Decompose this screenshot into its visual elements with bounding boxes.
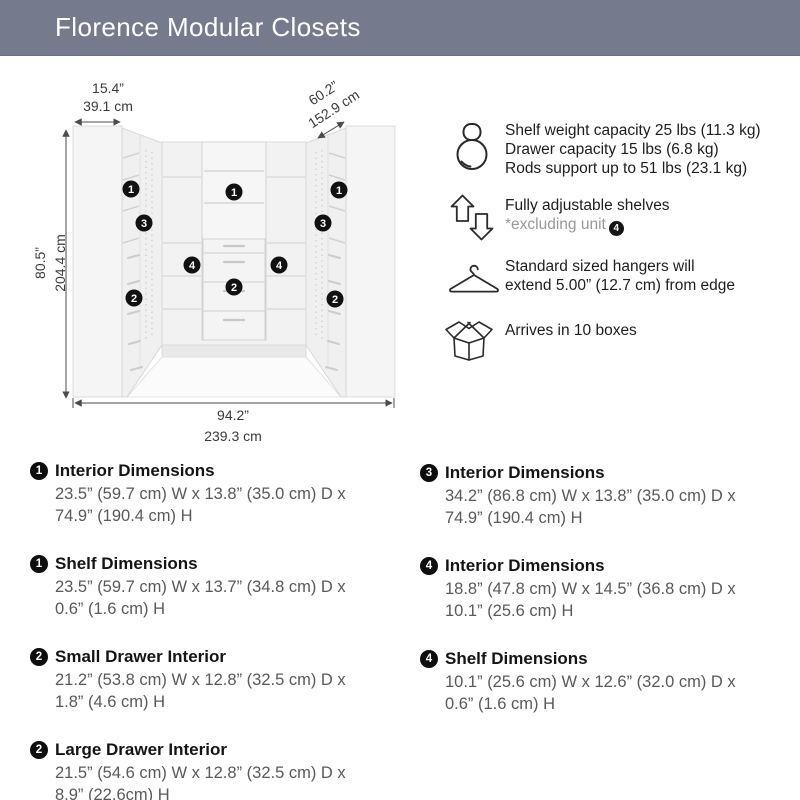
diagram-marker-2: 2 <box>327 291 344 308</box>
spec-badge: 1 <box>30 462 48 480</box>
dim-side-cm: 39.1 cm <box>83 98 133 114</box>
feature-adjustable-shelves: Fully adjustable shelves *excluding unit… <box>505 196 800 236</box>
adjustable-shelves-icon <box>450 193 494 243</box>
spec-item: 2Large Drawer Interior 21.5” (54.6 cm) W… <box>30 740 408 800</box>
dim-total-cm: 239.3 cm <box>204 428 262 444</box>
dim-total-inches: 94.2” <box>217 407 249 423</box>
spec-badge: 2 <box>30 741 48 759</box>
specs-left-column: 1Interior Dimensions 23.5” (59.7 cm) W x… <box>30 461 408 800</box>
diagram-marker-3: 3 <box>136 215 153 232</box>
spec-badge: 1 <box>30 555 48 573</box>
feature-hangers: Standard sized hangers will extend 5.00”… <box>505 257 800 295</box>
svg-text:3: 3 <box>320 218 326 230</box>
svg-text:2: 2 <box>131 293 137 305</box>
diagram-marker-4: 4 <box>184 257 201 274</box>
spec-badge: 4 <box>420 650 438 668</box>
closet-diagram: 15.4” 39.1 cm 60.2” 152.9 cm 80.5” 204.4… <box>0 0 450 460</box>
closet-illustration <box>73 126 395 397</box>
feature-boxes: Arrives in 10 boxes <box>505 321 800 340</box>
svg-text:1: 1 <box>231 187 237 199</box>
diagram-marker-2: 2 <box>226 279 243 296</box>
unit-4-badge: 4 <box>609 221 624 236</box>
spec-item: 2Small Drawer Interior 21.2” (53.8 cm) W… <box>30 647 408 713</box>
diagram-marker-2: 2 <box>126 290 143 307</box>
dim-height-inches: 80.5” <box>32 247 48 279</box>
hanger-icon <box>447 261 501 294</box>
svg-text:1: 1 <box>336 185 342 197</box>
svg-text:4: 4 <box>189 260 196 272</box>
svg-text:2: 2 <box>231 282 237 294</box>
feature-weight-capacity: Shelf weight capacity 25 lbs (11.3 kg) D… <box>505 121 800 178</box>
spec-item: 1Interior Dimensions 23.5” (59.7 cm) W x… <box>30 461 408 527</box>
spec-badge: 3 <box>420 464 438 482</box>
specs-right-column: 3Interior Dimensions 34.2” (86.8 cm) W x… <box>420 463 792 742</box>
diagram-marker-1: 1 <box>226 184 243 201</box>
diagram-marker-4: 4 <box>271 257 288 274</box>
kettlebell-icon <box>452 121 492 175</box>
diagram-marker-1: 1 <box>123 181 140 198</box>
spec-badge: 2 <box>30 648 48 666</box>
spec-badge: 4 <box>420 557 438 575</box>
dim-height-cm: 204.4 cm <box>52 234 68 292</box>
svg-text:2: 2 <box>332 294 338 306</box>
open-box-icon <box>444 311 494 363</box>
diagram-marker-3: 3 <box>315 215 332 232</box>
spec-item: 1Shelf Dimensions 23.5” (59.7 cm) W x 13… <box>30 554 408 620</box>
svg-text:3: 3 <box>141 218 147 230</box>
product-dimension-sheet: Florence Modular Closets <box>0 0 800 800</box>
svg-text:4: 4 <box>276 260 283 272</box>
svg-text:1: 1 <box>128 184 134 196</box>
spec-item: 3Interior Dimensions 34.2” (86.8 cm) W x… <box>420 463 792 529</box>
diagram-marker-1: 1 <box>331 182 348 199</box>
spec-item: 4Interior Dimensions 18.8” (47.8 cm) W x… <box>420 556 792 622</box>
spec-item: 4Shelf Dimensions 10.1” (25.6 cm) W x 12… <box>420 649 792 715</box>
dim-side-inches: 15.4” <box>92 80 124 96</box>
